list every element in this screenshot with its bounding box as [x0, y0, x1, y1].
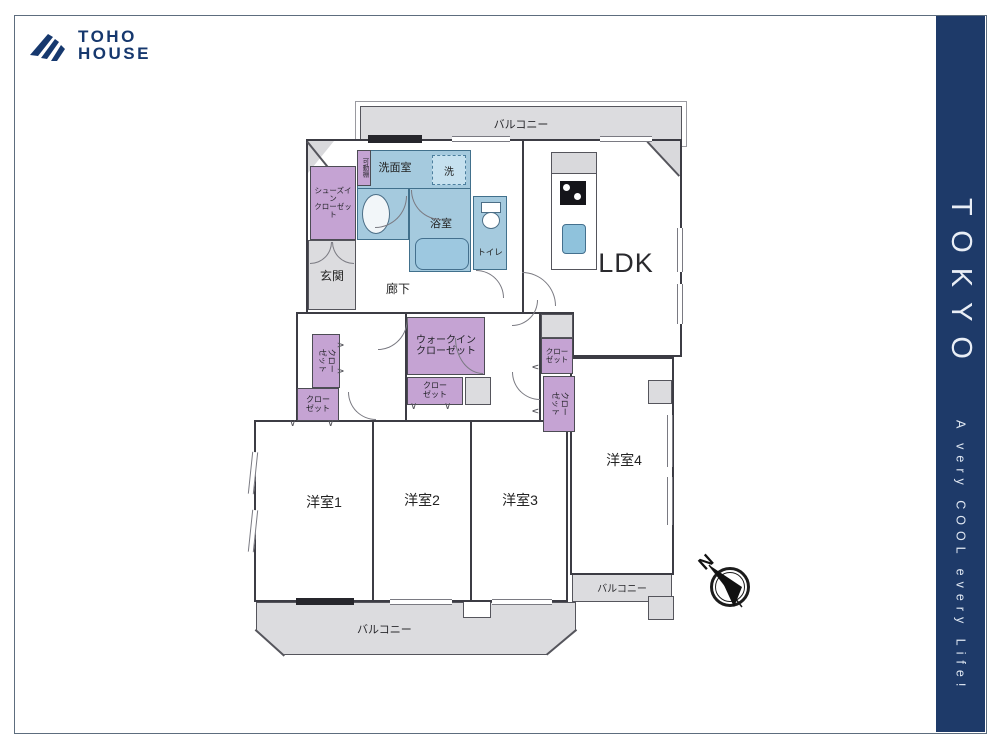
bathtub-icon — [415, 238, 469, 270]
room3-label: 洋室3 — [488, 492, 552, 508]
closet-label: クロー ゼット — [317, 349, 335, 373]
balcony-top-label: バルコニー — [494, 116, 549, 132]
room1-label: 洋室1 — [292, 494, 356, 510]
laundry-label: 洗 — [444, 163, 454, 178]
closet-pleat-mark: ∨ — [327, 419, 334, 429]
banner-title: TOKYO — [944, 198, 977, 374]
wall — [372, 420, 374, 602]
shoes-in-closet-line2: クローゼット — [311, 203, 355, 220]
laundry-space: 洗 — [432, 155, 466, 185]
balcony-corner-block — [648, 596, 674, 620]
kitchen-cabinet — [551, 152, 597, 174]
window-segment — [600, 136, 652, 142]
closet-pleat-mark: ∨ — [530, 363, 540, 370]
page: TOHO HOUSE TOKYO A very COOL every Life!… — [0, 0, 1000, 750]
closet-line1: クロー — [326, 349, 335, 373]
toilet-bowl-icon — [482, 212, 500, 229]
balcony-notch — [463, 602, 491, 618]
kitchen-sink-icon — [562, 224, 586, 254]
closet-pleat-mark: ∨ — [289, 419, 296, 429]
bathroom-label: 浴室 — [416, 218, 466, 231]
toho-house-logo-icon — [28, 25, 68, 65]
closet-right-lower: クロー ゼット — [543, 376, 575, 432]
balcony-right-label: バルコニー — [597, 580, 647, 595]
shoes-in-closet-line1: シューズイン — [311, 187, 355, 204]
closet-label: クロー ゼット — [306, 396, 330, 414]
room4-label: 洋室4 — [592, 452, 656, 468]
room2-label: 洋室2 — [390, 492, 454, 508]
banner-tagline: A very COOL every Life! — [954, 420, 968, 692]
movable-shelf: 可動棚 — [357, 150, 371, 186]
closet-label: クロー ゼット — [546, 348, 569, 365]
stove-icon — [560, 181, 586, 205]
brand-logo-text: TOHO HOUSE — [78, 28, 151, 63]
closet-pleat-mark: ∨ — [410, 402, 417, 412]
window-segment — [667, 415, 673, 467]
unit-block-bedrooms — [254, 420, 568, 602]
closet-pleat-mark: ∨ — [444, 402, 451, 412]
hallway-label: 廊下 — [370, 283, 426, 297]
brand-line2: HOUSE — [78, 45, 151, 62]
closet-line2: ゼット — [550, 392, 559, 416]
brand-line1: TOHO — [78, 28, 151, 45]
toilet-label: トイレ — [473, 248, 507, 258]
entrance-label: 玄関 — [310, 270, 354, 284]
shoes-in-closet-label: シューズイン クローゼット — [311, 187, 355, 220]
window-segment — [667, 477, 673, 525]
compass-icon: N — [697, 543, 761, 615]
closet-line2: ゼット — [306, 405, 330, 414]
closet-left-lower: クロー ゼット — [297, 388, 339, 421]
closet-line1: クロー — [559, 392, 568, 416]
movable-shelf-label: 可動棚 — [359, 158, 369, 178]
burner-icon — [563, 184, 570, 191]
balcony-bottom: バルコニー — [256, 602, 576, 655]
window-segment — [492, 599, 552, 605]
closet-pleat-mark: ∨ — [337, 367, 347, 374]
brand-logo: TOHO HOUSE — [28, 25, 151, 65]
closet-label: クロー ゼット — [550, 392, 568, 416]
side-banner: TOKYO A very COOL every Life! — [936, 16, 985, 732]
window-segment — [677, 284, 683, 324]
storage-block — [541, 314, 573, 338]
closet-pleat-mark: ∨ — [337, 341, 347, 348]
closet-right-upper: クロー ゼット — [541, 338, 573, 374]
window-segment — [390, 599, 452, 605]
window-segment — [677, 228, 683, 272]
closet-label: クロー ゼット — [423, 382, 447, 400]
wall — [470, 420, 472, 602]
window-sash — [368, 135, 422, 143]
closet-line2: ゼット — [423, 391, 447, 400]
burner-icon — [574, 193, 581, 200]
closet-pleat-mark: ∨ — [530, 407, 540, 414]
washroom-label: 洗面室 — [366, 162, 424, 175]
window-segment — [452, 136, 510, 142]
balcony-bottom-label: バルコニー — [357, 621, 412, 637]
ldk-label: LDK — [598, 248, 654, 279]
shoes-in-closet: シューズイン クローゼット — [310, 166, 356, 240]
closet-line2: ゼット — [546, 356, 569, 364]
closet-line2: ゼット — [317, 349, 326, 373]
pillar-room4 — [648, 380, 672, 404]
window-sash — [296, 598, 354, 605]
storage-block — [465, 377, 491, 405]
